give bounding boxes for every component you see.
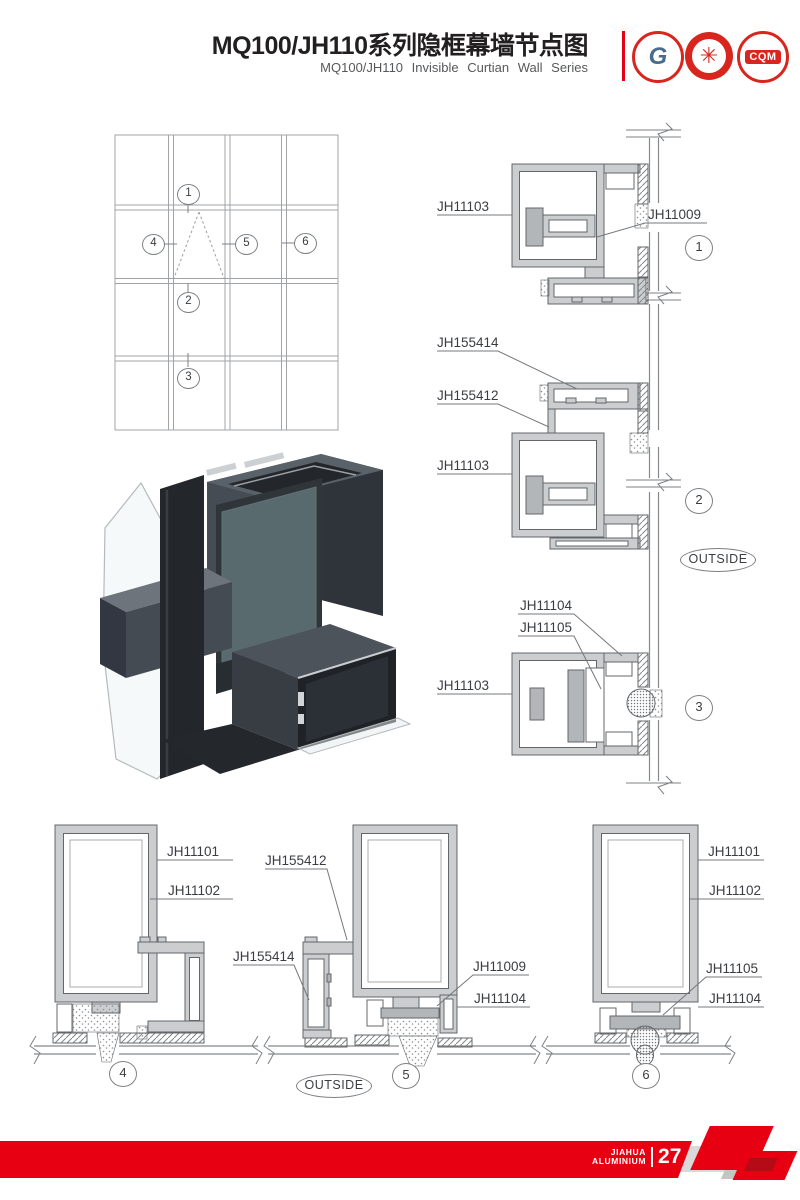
part-label: JH11103 xyxy=(437,199,489,214)
detail-number-1: 1 xyxy=(685,235,713,261)
vertical-glass-lines xyxy=(650,138,659,781)
part-label: JH155412 xyxy=(265,853,327,868)
page-number: 27 xyxy=(658,1146,681,1167)
elevation-callout-5: 5 xyxy=(235,234,258,255)
page-title: MQ100/JH110系列隐框幕墙节点图 xyxy=(212,26,588,62)
part-label: JH11102 xyxy=(709,883,761,898)
part-label: JH11104 xyxy=(709,991,761,1006)
quality-star-icon: ✳ xyxy=(685,32,733,80)
part-label: JH11103 xyxy=(437,678,489,693)
detail-3-section xyxy=(512,653,662,755)
part-label: JH155412 xyxy=(437,388,499,403)
cqm-certification-icon: CQM xyxy=(737,31,789,83)
footer-brand: JIAHUA ALUMINIUM 27 xyxy=(592,1146,681,1167)
detail-5-section xyxy=(303,825,472,1066)
vent-opening-symbol xyxy=(174,212,224,278)
part-label: JH11103 xyxy=(437,458,489,473)
elevation-grid xyxy=(115,135,338,430)
elevation-callout-2: 2 xyxy=(177,292,200,313)
detail-number-6: 6 xyxy=(632,1063,660,1089)
elevation-callout-ticks xyxy=(162,203,296,367)
part-label: JH11104 xyxy=(520,598,572,613)
elevation-callout-1: 1 xyxy=(177,184,200,205)
render-3d-corner xyxy=(100,452,410,779)
elevation-callout-3: 3 xyxy=(177,368,200,389)
outside-label-vertical: OUTSIDE xyxy=(680,548,756,572)
gb-logo-monogram: G xyxy=(649,43,668,71)
cqm-logo-monogram: CQM xyxy=(745,50,780,64)
detail-number-4: 4 xyxy=(109,1061,137,1087)
header-divider xyxy=(622,31,625,81)
outside-label-horizontal: OUTSIDE xyxy=(296,1074,372,1098)
page-subtitle: MQ100/JH110 Invisible Curtian Wall Serie… xyxy=(320,60,588,75)
catalog-page: MQ100/JH110系列隐框幕墙节点图 MQ100/JH110 Invisib… xyxy=(0,0,800,1200)
part-label: JH11101 xyxy=(708,844,760,859)
drawing-canvas xyxy=(0,0,800,1200)
footer-deco-red-overlap xyxy=(744,1158,778,1171)
elevation-callout-4: 4 xyxy=(142,234,165,255)
part-label: JH11105 xyxy=(706,961,758,976)
detail-number-3: 3 xyxy=(685,695,713,721)
part-label: JH11104 xyxy=(474,991,526,1006)
detail-1-section xyxy=(512,164,648,304)
brand-separator xyxy=(651,1147,653,1167)
brand-line-2: ALUMINIUM xyxy=(592,1157,646,1166)
detail-number-5: 5 xyxy=(392,1063,420,1089)
part-label: JH11105 xyxy=(520,620,572,635)
plan-glass-lines xyxy=(34,1046,731,1054)
part-label: JH155414 xyxy=(233,949,295,964)
detail-number-2: 2 xyxy=(685,488,713,514)
gb-certification-icon: G xyxy=(632,31,684,83)
part-label: JH11009 xyxy=(473,959,526,974)
part-label: JH11102 xyxy=(168,883,220,898)
detail-4-section xyxy=(53,825,204,1062)
elevation-callout-6: 6 xyxy=(294,233,317,254)
star-logo-glyph: ✳ xyxy=(700,45,718,67)
detail-2-section xyxy=(512,383,648,549)
detail-6-section xyxy=(593,825,698,1065)
part-label: JH155414 xyxy=(437,335,499,350)
part-label: JH11101 xyxy=(167,844,219,859)
part-label: JH11009 xyxy=(648,207,701,222)
